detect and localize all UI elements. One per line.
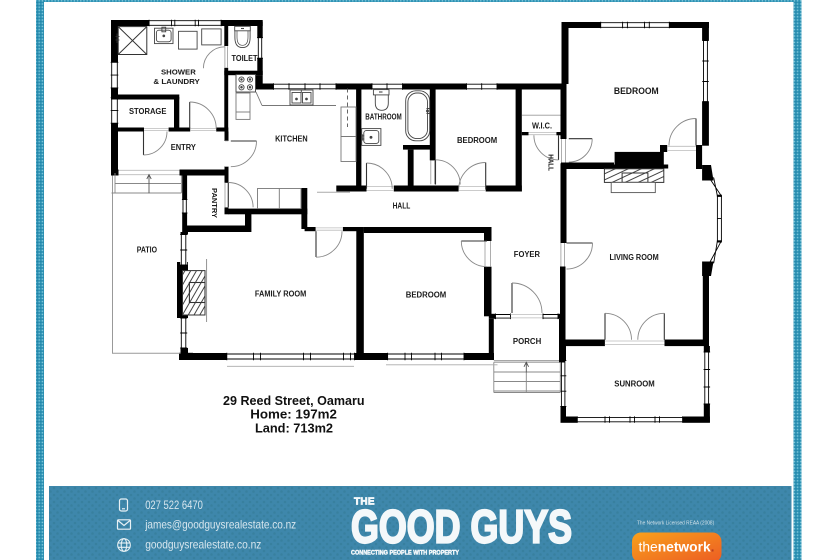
svg-text:SUNROOM: SUNROOM <box>614 379 654 388</box>
svg-text:PATIO: PATIO <box>137 245 157 254</box>
svg-text:027 522 6470: 027 522 6470 <box>145 499 203 512</box>
svg-text:FOYER: FOYER <box>514 250 541 259</box>
svg-text:PANTRY: PANTRY <box>210 188 219 218</box>
svg-text:LIVING ROOM: LIVING ROOM <box>610 253 659 262</box>
svg-text:PORCH: PORCH <box>513 337 542 346</box>
svg-text:james@goodguysrealestate.co.nz: james@goodguysrealestate.co.nz <box>144 519 296 532</box>
svg-text:ENTRY: ENTRY <box>171 143 197 152</box>
svg-text:BATHROOM: BATHROOM <box>365 113 402 122</box>
svg-text:& LAUNDRY: & LAUNDRY <box>153 77 199 86</box>
svg-text:HALL: HALL <box>393 201 411 210</box>
svg-text:KITCHEN: KITCHEN <box>275 135 308 144</box>
svg-text:SHOWER: SHOWER <box>161 67 196 76</box>
svg-text:GOOD GUYS: GOOD GUYS <box>351 501 572 553</box>
svg-text:thenetwork.: thenetwork. <box>639 540 715 555</box>
svg-text:HALL: HALL <box>547 154 556 171</box>
svg-text:goodguysrealestate.co.nz: goodguysrealestate.co.nz <box>145 538 261 551</box>
svg-text:Land: 713m2: Land: 713m2 <box>255 420 333 435</box>
svg-text:W.I.C.: W.I.C. <box>532 122 552 131</box>
svg-text:CONNECTING PEOPLE WITH PROPERT: CONNECTING PEOPLE WITH PROPERTY <box>351 550 459 557</box>
svg-text:TOILET: TOILET <box>232 54 258 63</box>
svg-text:BEDROOM: BEDROOM <box>457 136 497 145</box>
svg-text:The Network Licensed REAA (200: The Network Licensed REAA (2008) <box>637 520 714 526</box>
svg-text:BEDROOM: BEDROOM <box>614 85 659 96</box>
svg-text:STORAGE: STORAGE <box>129 107 167 116</box>
svg-text:FAMILY ROOM: FAMILY ROOM <box>255 290 306 299</box>
svg-text:BEDROOM: BEDROOM <box>406 291 447 300</box>
